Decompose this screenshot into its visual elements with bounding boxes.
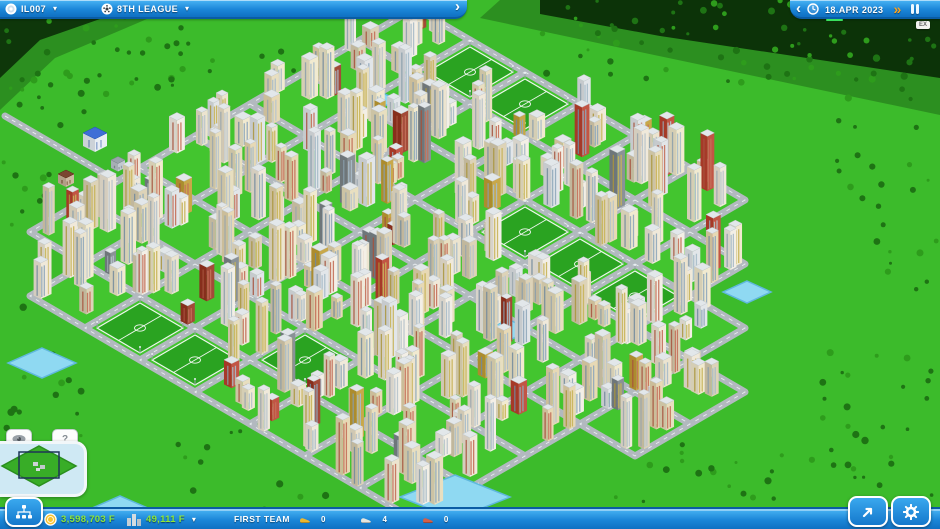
- gold-boot-count: 0: [321, 515, 325, 524]
- chevron-down-icon: ▾: [192, 515, 196, 524]
- gear-icon: [903, 504, 919, 520]
- gold-boot-icon: [298, 514, 313, 525]
- fast-forward-button[interactable]: »: [893, 3, 901, 15]
- team-label: FIRST TEAM: [234, 514, 290, 524]
- settings-button[interactable]: [891, 496, 931, 527]
- money-value: 3,598,703 F: [61, 514, 115, 525]
- money-display: 3,598,703 F: [44, 509, 115, 529]
- city-map[interactable]: [0, 0, 940, 529]
- chevron-down-icon: ▾: [185, 4, 189, 13]
- expand-chevron-icon[interactable]: ›: [455, 0, 460, 14]
- bottom-bar: 3,598,703 F 49,111 F ▾ FIRST TEAM 0: [0, 507, 940, 529]
- silver-boot-icon: [359, 514, 374, 525]
- minimap-canvas: [0, 444, 78, 488]
- collapse-chevron-icon[interactable]: ‹: [796, 2, 801, 16]
- profile-dropdown[interactable]: IL007 ▾: [5, 3, 57, 15]
- diagonal-arrow-icon: [860, 504, 876, 520]
- top-bar-left: IL007 ▾ 8TH LEAGUE ▾ ›: [0, 0, 467, 19]
- red-boot-icon: [421, 514, 436, 525]
- silver-boot-count: 4: [382, 515, 386, 524]
- clock-icon: [807, 3, 819, 15]
- income-dropdown[interactable]: 49,111 F ▾: [126, 509, 196, 529]
- buildings-icon: [126, 513, 142, 526]
- org-chart-button[interactable]: [5, 497, 43, 527]
- ex-badge[interactable]: EX: [916, 21, 930, 29]
- game-screen: IL007 ▾ 8TH LEAGUE ▾ › ‹ 18.APR 2023: [0, 0, 940, 529]
- minimap[interactable]: [0, 441, 87, 497]
- pause-icon: [911, 4, 914, 14]
- red-boot-count: 0: [444, 515, 448, 524]
- top-bar-right: ‹ 18.APR 2023 »: [790, 0, 940, 19]
- season-progress-underline: [826, 19, 843, 21]
- league-label: 8TH LEAGUE: [117, 4, 178, 14]
- league-dropdown[interactable]: 8TH LEAGUE ▾: [101, 3, 189, 15]
- expand-button[interactable]: [848, 496, 888, 527]
- profile-label: IL007: [21, 4, 46, 14]
- pause-button[interactable]: [911, 4, 919, 14]
- soccer-ball-icon: [101, 3, 113, 15]
- coin-icon: [44, 513, 57, 526]
- date-display: 18.APR 2023: [825, 0, 883, 18]
- income-value: 49,111 F: [146, 514, 185, 525]
- team-label-group: FIRST TEAM: [234, 509, 290, 529]
- pause-icon: [916, 4, 919, 14]
- club-badge-icon: [5, 3, 17, 15]
- date-label: 18.APR 2023: [825, 5, 883, 15]
- boot-stats: 0 4 0: [298, 509, 448, 529]
- chevron-down-icon: ▾: [53, 4, 57, 13]
- org-chart-icon: [15, 505, 33, 519]
